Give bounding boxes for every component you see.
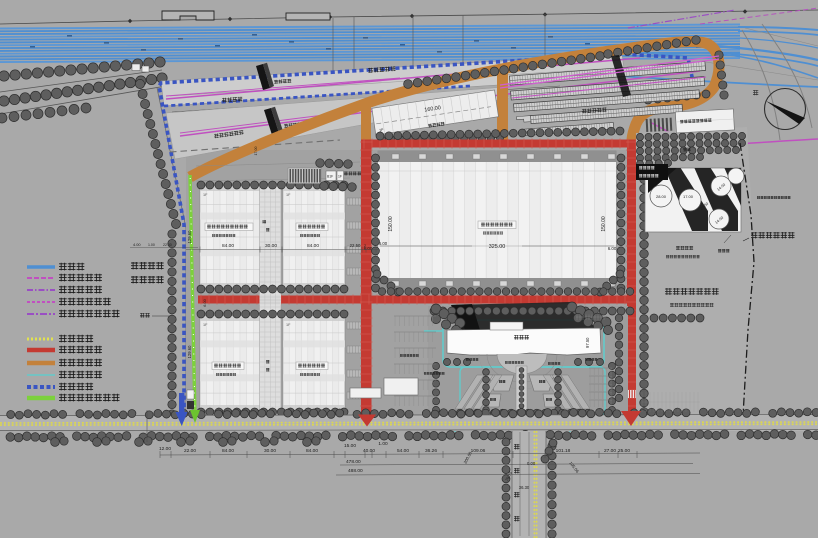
svg-text:30.00: 30.00 xyxy=(265,243,277,249)
svg-text:488.00: 488.00 xyxy=(348,468,363,474)
svg-text:84.00: 84.00 xyxy=(306,448,318,454)
svg-text:150.00: 150.00 xyxy=(601,216,607,232)
svg-text:84.00: 84.00 xyxy=(307,243,319,249)
svg-text:36.26: 36.26 xyxy=(425,448,437,454)
svg-text:1F: 1F xyxy=(286,323,291,327)
svg-text:17.00: 17.00 xyxy=(254,147,258,156)
svg-text:129.60: 129.60 xyxy=(187,230,192,243)
svg-text:84.00: 84.00 xyxy=(222,448,234,454)
svg-text:22.00: 22.00 xyxy=(184,448,196,454)
svg-text:84.00: 84.00 xyxy=(222,243,234,249)
svg-text:25.00: 25.00 xyxy=(618,448,630,454)
svg-text:27.00: 27.00 xyxy=(604,448,616,454)
svg-text:28.00: 28.00 xyxy=(656,194,667,199)
svg-text:6.00: 6.00 xyxy=(202,298,207,306)
svg-text:325.00: 325.00 xyxy=(489,244,506,250)
svg-text:36.30: 36.30 xyxy=(519,485,530,490)
svg-text:1F: 1F xyxy=(203,193,208,197)
svg-text:6.00: 6.00 xyxy=(379,241,388,246)
svg-text:1F: 1F xyxy=(203,323,208,327)
svg-text:129.60: 129.60 xyxy=(187,345,192,358)
svg-text:150.00: 150.00 xyxy=(388,216,394,232)
svg-text:22.50: 22.50 xyxy=(350,243,361,248)
svg-text:1F: 1F xyxy=(338,175,342,179)
svg-text:0.00: 0.00 xyxy=(527,461,536,466)
svg-text:6.00: 6.00 xyxy=(608,246,617,251)
svg-text:12.00: 12.00 xyxy=(159,446,171,452)
svg-text:54.00: 54.00 xyxy=(397,448,409,454)
svg-text:4.00: 4.00 xyxy=(133,242,141,247)
svg-text:478.00: 478.00 xyxy=(346,459,361,465)
svg-text:1F: 1F xyxy=(286,193,291,197)
svg-text:101.18: 101.18 xyxy=(556,448,571,454)
svg-text:B1F: B1F xyxy=(327,175,333,179)
svg-text:109.06: 109.06 xyxy=(471,448,486,454)
svg-text:22.00: 22.00 xyxy=(163,243,172,247)
svg-text:30.00: 30.00 xyxy=(264,448,276,454)
svg-text:40.00: 40.00 xyxy=(363,448,375,454)
svg-text:1.00: 1.00 xyxy=(148,243,155,247)
svg-text:17.00: 17.00 xyxy=(683,194,694,199)
svg-text:97.50: 97.50 xyxy=(585,337,590,348)
svg-text:1.00: 1.00 xyxy=(378,441,388,447)
svg-text:15.00: 15.00 xyxy=(344,443,356,449)
